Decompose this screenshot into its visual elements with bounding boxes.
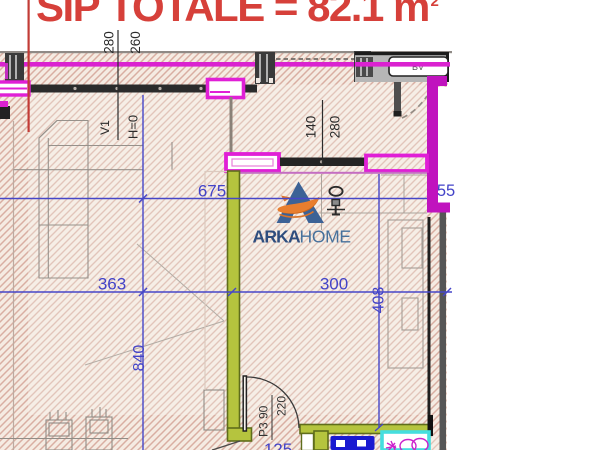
- svg-text:P3 90: P3 90: [257, 405, 271, 437]
- svg-text:408: 408: [371, 287, 388, 314]
- svg-text:675: 675: [198, 182, 226, 201]
- svg-text:140: 140: [304, 116, 319, 139]
- svg-text:ARKA: ARKA: [253, 227, 302, 247]
- svg-text:55: 55: [437, 182, 455, 200]
- svg-text:280: 280: [102, 31, 117, 54]
- svg-text:125: 125: [264, 440, 292, 450]
- svg-text:2: 2: [431, 0, 439, 10]
- svg-text:220: 220: [275, 396, 289, 416]
- svg-text:HOME: HOME: [300, 227, 351, 247]
- svg-text:300: 300: [320, 275, 348, 294]
- svg-text:V1: V1: [98, 120, 112, 135]
- svg-text:260: 260: [128, 31, 143, 54]
- svg-text:280: 280: [328, 116, 343, 139]
- svg-text:H=0: H=0: [126, 115, 141, 139]
- svg-text:840: 840: [131, 345, 148, 372]
- svg-text:SIP TOTALE = 82.1 m: SIP TOTALE = 82.1 m: [36, 0, 429, 30]
- svg-text:363: 363: [98, 275, 126, 294]
